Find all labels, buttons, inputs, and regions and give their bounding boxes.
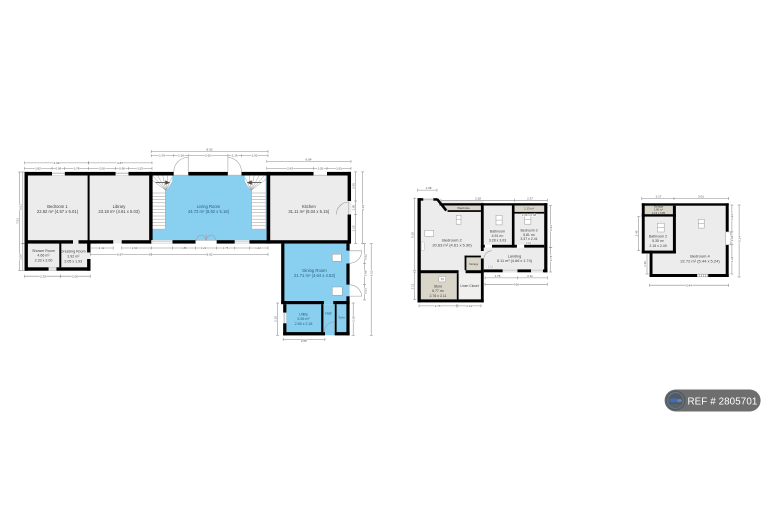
svg-text:4.91 m²: 4.91 m² — [492, 234, 505, 238]
svg-text:3.10: 3.10 — [526, 241, 532, 245]
svg-text:5.56 m²: 5.56 m² — [297, 317, 310, 321]
svg-text:1.00: 1.00 — [351, 204, 355, 210]
svg-text:1.22: 1.22 — [201, 246, 207, 250]
svg-text:21.71 m² (4.64 x 4.53): 21.71 m² (4.64 x 4.53) — [294, 273, 336, 278]
svg-text:2.05 x 1.93: 2.05 x 1.93 — [64, 259, 82, 263]
svg-text:2.62: 2.62 — [205, 154, 211, 158]
svg-text:1.76: 1.76 — [159, 154, 165, 158]
svg-text:8.92: 8.92 — [206, 148, 212, 152]
svg-text:2.33 x 2.00: 2.33 x 2.00 — [35, 259, 53, 263]
svg-text:1.02: 1.02 — [730, 235, 734, 241]
svg-text:5.44: 5.44 — [686, 283, 692, 287]
svg-text:31.11 m² (6.04 x 5.15): 31.11 m² (6.04 x 5.15) — [288, 209, 329, 214]
svg-text:Wardrobe: Wardrobe — [457, 206, 470, 210]
svg-text:1.82: 1.82 — [35, 167, 41, 171]
svg-text:5.15: 5.15 — [361, 204, 365, 210]
svg-text:8.92: 8.92 — [206, 253, 212, 257]
svg-text:1.13 m²: 1.13 m² — [524, 206, 534, 210]
svg-text:5.35 m²: 5.35 m² — [652, 239, 665, 243]
svg-text:1.76: 1.76 — [223, 246, 229, 250]
svg-text:2.37: 2.37 — [527, 196, 533, 200]
svg-text:1.93: 1.93 — [730, 214, 734, 220]
svg-text:2.36 x 0.48: 2.36 x 0.48 — [522, 213, 537, 217]
svg-text:Storage: Storage — [469, 262, 479, 266]
svg-text:1.08: 1.08 — [426, 186, 432, 190]
svg-text:6.87: 6.87 — [117, 253, 123, 257]
svg-text:1.53: 1.53 — [137, 167, 143, 171]
svg-text:5.24: 5.24 — [737, 236, 741, 242]
svg-text:2.31: 2.31 — [466, 304, 472, 308]
svg-text:2.33: 2.33 — [40, 274, 46, 278]
svg-text:20.63 m² (4.61 x 5.30): 20.63 m² (4.61 x 5.30) — [432, 242, 472, 247]
svg-text:6.77 m²: 6.77 m² — [432, 289, 445, 293]
svg-text:1.78: 1.78 — [74, 167, 80, 171]
svg-text:22.72 m² (5.44 x 5.24): 22.72 m² (5.44 x 5.24) — [680, 259, 720, 264]
svg-text:1.10: 1.10 — [488, 265, 494, 269]
svg-text:7.01: 7.01 — [15, 218, 19, 224]
svg-text:1.29: 1.29 — [730, 256, 734, 262]
svg-text:0.96: 0.96 — [55, 167, 61, 171]
svg-text:23.18 m² (4.61 x 5.03): 23.18 m² (4.61 x 5.03) — [98, 209, 140, 214]
svg-text:Bathroom: Bathroom — [490, 230, 505, 234]
svg-text:Shower Room: Shower Room — [32, 249, 55, 253]
svg-text:2.00: 2.00 — [19, 254, 23, 260]
svg-text:1.22: 1.22 — [255, 246, 261, 250]
svg-text:2.05: 2.05 — [72, 274, 78, 278]
svg-text:3.01: 3.01 — [698, 195, 704, 199]
svg-text:2.18: 2.18 — [352, 316, 356, 322]
svg-text:1.86: 1.86 — [181, 246, 187, 250]
svg-text:Linen Closet: Linen Closet — [460, 284, 478, 288]
svg-text:4.66: 4.66 — [513, 282, 519, 286]
svg-text:2.05: 2.05 — [351, 183, 355, 189]
svg-text:0.92: 0.92 — [364, 254, 368, 260]
svg-text:1.91: 1.91 — [336, 167, 342, 171]
svg-text:1.35: 1.35 — [643, 261, 647, 267]
svg-text:44.73 m² (8.92 x 5.16): 44.73 m² (8.92 x 5.16) — [188, 209, 230, 214]
svg-text:4.99: 4.99 — [53, 161, 59, 165]
svg-text:0.96: 0.96 — [119, 167, 125, 171]
svg-text:Landing: Landing — [508, 255, 522, 259]
svg-text:2.55 x 2.18: 2.55 x 2.18 — [295, 322, 313, 326]
svg-text:1.93: 1.93 — [132, 246, 138, 250]
svg-text:1.88: 1.88 — [364, 270, 368, 276]
svg-text:1.16: 1.16 — [178, 154, 184, 158]
svg-text:4.66 m²: 4.66 m² — [37, 254, 50, 258]
svg-text:8.11 m² (4.66 x 1.74): 8.11 m² (4.66 x 1.74) — [497, 259, 533, 263]
svg-text:2.28: 2.28 — [475, 196, 481, 200]
svg-text:4.87: 4.87 — [117, 161, 123, 165]
svg-text:Hall: Hall — [325, 312, 331, 316]
svg-text:1.92: 1.92 — [252, 154, 258, 158]
svg-text:2.76 x 2.11: 2.76 x 2.11 — [429, 294, 446, 298]
svg-text:2.00: 2.00 — [99, 167, 105, 171]
svg-text:3.28 x 3.03: 3.28 x 3.03 — [489, 239, 506, 243]
svg-text:Dressing Room: Dressing Room — [61, 249, 86, 253]
svg-text:2.17: 2.17 — [656, 195, 662, 199]
svg-text:2.49: 2.49 — [635, 230, 639, 236]
svg-text:5.30: 5.30 — [410, 232, 414, 238]
svg-text:Bathroom 2: Bathroom 2 — [649, 235, 667, 239]
svg-text:2.13 x 0.85: 2.13 x 0.85 — [652, 211, 666, 215]
svg-text:3.92 m²: 3.92 m² — [67, 254, 80, 258]
svg-text:3.37 x 2.41: 3.37 x 2.41 — [520, 237, 537, 241]
svg-text:22.82 m² (4.57 x 5.01): 22.82 m² (4.57 x 5.01) — [37, 209, 79, 214]
svg-text:2.15 x 2.49: 2.15 x 2.49 — [649, 244, 666, 248]
svg-text:2.55: 2.55 — [301, 339, 307, 343]
svg-text:2.11: 2.11 — [410, 283, 414, 289]
svg-text:1.74: 1.74 — [549, 255, 553, 261]
svg-text:2.43: 2.43 — [549, 225, 553, 231]
svg-text:6.04: 6.04 — [305, 158, 311, 162]
svg-text:Store: Store — [434, 285, 442, 289]
svg-text:2.43: 2.43 — [287, 167, 293, 171]
svg-text:2.18: 2.18 — [273, 316, 277, 322]
svg-text:Toilet: Toilet — [338, 315, 345, 319]
svg-text:5.01: 5.01 — [19, 204, 23, 210]
svg-text:2.76: 2.76 — [435, 304, 441, 308]
svg-text:0.93: 0.93 — [364, 288, 368, 294]
svg-text:Utility: Utility — [299, 312, 308, 316]
svg-text:1.76: 1.76 — [495, 274, 501, 278]
svg-text:4.53: 4.53 — [370, 270, 374, 276]
svg-text:1.16: 1.16 — [232, 154, 238, 158]
svg-text:1.20: 1.20 — [317, 167, 323, 171]
svg-text:2.10: 2.10 — [351, 225, 355, 231]
svg-text:2.42: 2.42 — [99, 246, 105, 250]
svg-text:2.11: 2.11 — [527, 274, 533, 278]
svg-text:REF # 2805701: REF # 2805701 — [688, 396, 758, 407]
